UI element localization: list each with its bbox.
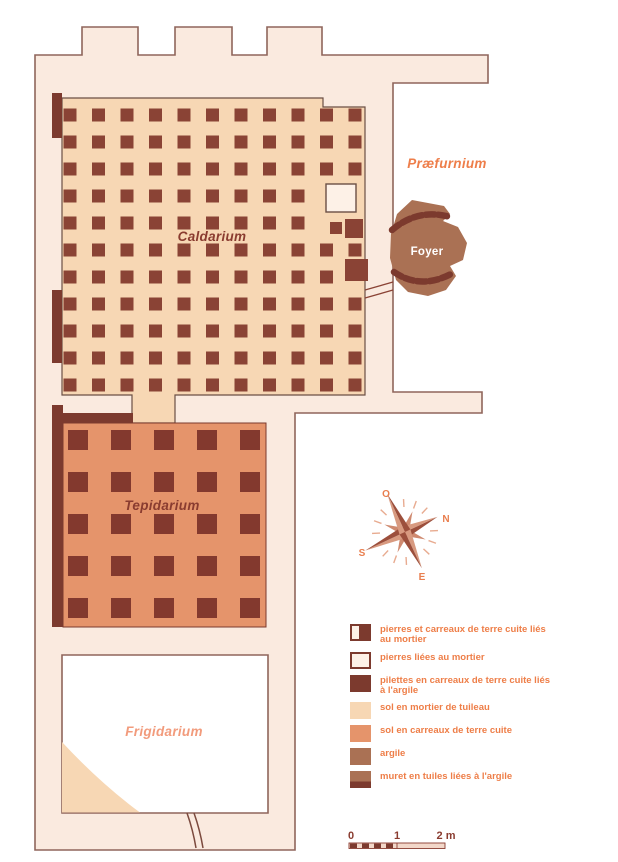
scale-label-0: 0: [348, 830, 354, 842]
praefurnium-label: Præfurnium: [407, 156, 487, 171]
caldarium-pilette-square: [263, 325, 276, 338]
caldarium-pilette-square: [92, 379, 105, 392]
muret-left-upper: [52, 93, 62, 138]
tepidarium-tile-square: [154, 556, 174, 576]
legend-label: sol en carreaux de terre cuite: [380, 726, 555, 736]
caldarium-pilette-square: [121, 136, 134, 149]
caldarium-pilette-square: [292, 109, 305, 122]
compass-tick: [381, 550, 389, 556]
tepidarium-tile-square: [240, 598, 260, 618]
caldarium-label: Caldarium: [178, 229, 247, 244]
legend-label: pierres et carreaux de terre cuite liés …: [380, 625, 555, 646]
legend-item: sol en mortier de tuileau: [350, 702, 600, 719]
legend-swatch-solid-dark: [350, 675, 371, 692]
caldarium-pilette-square: [178, 109, 191, 122]
caldarium-pilette-square: [235, 325, 248, 338]
caldarium-pilette-square: [292, 163, 305, 176]
frigidarium-mortar-patch: [62, 742, 140, 813]
tepidarium-tile-square: [111, 598, 131, 618]
compass-tick: [411, 501, 418, 508]
caldarium-pilette-square: [92, 352, 105, 365]
tepidarium-tile-square: [154, 598, 174, 618]
legend-item: argile: [350, 748, 600, 765]
compass-tick: [429, 538, 436, 545]
legend-swatch-split: [350, 624, 371, 641]
caldarium-pilette-square: [263, 190, 276, 203]
caldarium-pilette-square: [206, 163, 219, 176]
caldarium-pilette-square: [121, 109, 134, 122]
caldarium-pilette-square: [349, 244, 362, 257]
caldarium-pilette-square: [292, 352, 305, 365]
caldarium-pilette-square: [178, 244, 191, 257]
caldarium-pilette-square: [320, 352, 333, 365]
tepidarium-tile-square: [240, 556, 260, 576]
frigidarium-label: Frigidarium: [125, 724, 203, 739]
caldarium-pilette-square: [178, 190, 191, 203]
caldarium-pilette-square: [178, 325, 191, 338]
caldarium-pilette-square: [121, 298, 134, 311]
caldarium-pilette-square: [121, 379, 134, 392]
tepidarium-tile-square: [197, 598, 217, 618]
caldarium-pilette-square: [64, 136, 77, 149]
compass-tick: [381, 508, 387, 516]
caldarium-pilette-square: [64, 190, 77, 203]
compass-tick: [401, 499, 407, 507]
caldarium-pilette-square: [292, 298, 305, 311]
caldarium-pilette-square: [320, 379, 333, 392]
caldarium-pilette-square: [206, 325, 219, 338]
caldarium-pilette-square: [263, 163, 276, 176]
caldarium-pilette-square: [206, 379, 219, 392]
scale-label-2m: 2 m: [437, 830, 456, 842]
compass-tick: [430, 528, 438, 534]
caldarium-pilette-square: [64, 163, 77, 176]
scale-bar: [349, 843, 445, 849]
tepidarium-tile-square: [197, 472, 217, 492]
caldarium-pilette-square: [64, 244, 77, 257]
tepidarium-tile-square: [240, 514, 260, 534]
caldarium-pilette-square: [320, 136, 333, 149]
tepidarium-tile-square: [154, 430, 174, 450]
legend-swatch-tile-floor: [350, 725, 371, 742]
caldarium-pilette-square: [235, 298, 248, 311]
tepidarium-tile-square: [68, 430, 88, 450]
caldarium-pilette-square: [149, 163, 162, 176]
caldarium-pilette-square: [149, 217, 162, 230]
compass-letter-south: S: [359, 548, 366, 559]
caldarium-pilette-square: [92, 109, 105, 122]
caldarium-pilette-square: [235, 352, 248, 365]
caldarium-pilette-square: [320, 298, 333, 311]
tepidarium-tile-square: [197, 430, 217, 450]
tepidarium-label: Tepidarium: [124, 498, 199, 513]
tepidarium-tile-square: [154, 514, 174, 534]
caldarium-pilette-square: [121, 271, 134, 284]
caldarium-pilette-square: [263, 244, 276, 257]
caldarium-pilette-square: [349, 136, 362, 149]
caldarium-pilette-square: [178, 136, 191, 149]
caldarium-pilette-square: [206, 190, 219, 203]
caldarium-pilette-square: [320, 271, 333, 284]
caldarium-pilette-square: [292, 379, 305, 392]
caldarium-pilette-square: [121, 244, 134, 257]
caldarium-pilette-square: [64, 379, 77, 392]
caldarium-pilette-square: [121, 325, 134, 338]
tepidarium-tile-square: [111, 430, 131, 450]
caldarium-pilette-square: [149, 352, 162, 365]
caldarium-pilette-square: [235, 244, 248, 257]
caldarium-pilette-square: [206, 109, 219, 122]
scale-label-1: 1: [394, 830, 400, 842]
white-stone-block: [326, 184, 356, 212]
tepidarium-tile-square: [240, 472, 260, 492]
caldarium-pilette-square: [149, 379, 162, 392]
caldarium-pilette-square: [263, 271, 276, 284]
caldarium-pilette-square: [263, 379, 276, 392]
caldarium-pilette-square: [235, 136, 248, 149]
caldarium-pilette-square: [206, 217, 219, 230]
legend-swatch-outline: [350, 652, 371, 669]
caldarium-pilette-square: [92, 190, 105, 203]
legend-item: muret en tuiles liées à l'argile: [350, 771, 600, 788]
caldarium-pilette-square: [178, 271, 191, 284]
caldarium-pilette-square: [92, 298, 105, 311]
caldarium-pilette-square: [121, 352, 134, 365]
caldarium-pilette-square: [149, 244, 162, 257]
caldarium-pilette-square: [149, 325, 162, 338]
caldarium-pilette-square: [349, 298, 362, 311]
compass-tick: [403, 557, 409, 565]
compass-letter-east: E: [419, 572, 426, 583]
caldarium-pilette-square: [349, 352, 362, 365]
caldarium-pilette-square: [64, 217, 77, 230]
tepidarium-tile-square: [68, 514, 88, 534]
compass-tick: [391, 556, 398, 563]
caldarium-pilette-square: [121, 163, 134, 176]
caldarium-pilette-square: [92, 325, 105, 338]
pilette-block-c: [345, 259, 368, 281]
caldarium-pilette-square: [349, 379, 362, 392]
caldarium-pilette-square: [178, 298, 191, 311]
caldarium-pilette-square: [235, 190, 248, 203]
caldarium-pilette-square: [178, 163, 191, 176]
compass-tick: [372, 530, 380, 536]
caldarium-pilette-square: [92, 136, 105, 149]
caldarium-pilette-square: [349, 325, 362, 338]
caldarium-pilette-square: [235, 271, 248, 284]
tepidarium-tile-square: [240, 430, 260, 450]
caldarium-pilette-square: [206, 298, 219, 311]
caldarium-pilette-square: [64, 109, 77, 122]
caldarium-pilette-square: [206, 271, 219, 284]
caldarium-pilette-square: [64, 352, 77, 365]
legend-swatch-clay: [350, 748, 371, 765]
caldarium-pilette-square: [121, 190, 134, 203]
legend-item: sol en carreaux de terre cuite: [350, 725, 600, 742]
legend-item: pierres et carreaux de terre cuite liés …: [350, 624, 600, 646]
compass-rose-icon: [347, 479, 454, 587]
legend-swatch-clay-muret: [350, 771, 371, 788]
tepidarium-tile-square: [68, 556, 88, 576]
caldarium-pilette-square: [149, 271, 162, 284]
caldarium-pilette-square: [292, 271, 305, 284]
tepidarium-tile-square: [154, 472, 174, 492]
legend: pierres et carreaux de terre cuite liés …: [350, 624, 600, 794]
caldarium-pilette-square: [178, 379, 191, 392]
legend-label: pierres liées au mortier: [380, 653, 555, 663]
tepidarium-tile-square: [111, 556, 131, 576]
legend-label: argile: [380, 749, 555, 759]
legend-label: pilettes en carreaux de terre cuite liés…: [380, 676, 555, 697]
caldarium-pilette-square: [263, 136, 276, 149]
caldarium-pilette-square: [64, 298, 77, 311]
caldarium-pilette-square: [92, 244, 105, 257]
compass-letter-north: N: [442, 514, 449, 525]
caldarium-pilette-square: [263, 109, 276, 122]
caldarium-pilette-square: [320, 109, 333, 122]
caldarium-pilette-square: [92, 271, 105, 284]
caldarium-pilette-square: [235, 217, 248, 230]
compass-tick: [374, 518, 381, 525]
caldarium-pilette-square: [92, 163, 105, 176]
tepidarium-tile-square: [111, 472, 131, 492]
compass-tick: [421, 508, 429, 514]
foyer-label: Foyer: [411, 246, 444, 258]
caldarium-pilette-square: [206, 244, 219, 257]
legend-label: sol en mortier de tuileau: [380, 703, 555, 713]
caldarium-pilette-square: [149, 136, 162, 149]
caldarium-pilette-square: [121, 217, 134, 230]
caldarium-pilette-square: [206, 352, 219, 365]
caldarium-pilette-square: [64, 325, 77, 338]
caldarium-pilette-square: [149, 298, 162, 311]
caldarium-pilette-square: [235, 163, 248, 176]
pilette-block-b: [345, 219, 363, 238]
caldarium-pilette-square: [320, 244, 333, 257]
caldarium-pilette-square: [292, 325, 305, 338]
caldarium-pilette-square: [149, 190, 162, 203]
legend-label: muret en tuiles liées à l'argile: [380, 772, 555, 782]
caldarium-pilette-square: [178, 217, 191, 230]
tepidarium-tile-square: [197, 556, 217, 576]
legend-swatch-mortar-floor: [350, 702, 371, 719]
caldarium-pilette-square: [349, 163, 362, 176]
pilette-block-a: [330, 222, 342, 234]
caldarium-pilette-square: [235, 109, 248, 122]
tepidarium-tile-square: [68, 472, 88, 492]
caldarium-pilette-square: [206, 136, 219, 149]
caldarium-pilette-square: [263, 217, 276, 230]
caldarium-pilette-square: [149, 109, 162, 122]
caldarium-pilette-square: [64, 271, 77, 284]
muret-left-lower: [52, 290, 62, 363]
tepidarium-tile-square: [68, 598, 88, 618]
caldarium-pilette-square: [263, 352, 276, 365]
legend-item: pilettes en carreaux de terre cuite liés…: [350, 675, 600, 697]
tepidarium-tile-square: [197, 514, 217, 534]
caldarium-pilette-square: [92, 217, 105, 230]
caldarium-pilette-square: [292, 190, 305, 203]
caldarium-pilette-square: [178, 352, 191, 365]
legend-item: pierres liées au mortier: [350, 652, 600, 669]
caldarium-pilette-square: [349, 109, 362, 122]
caldarium-pilette-square: [292, 244, 305, 257]
compass-letter-west: O: [382, 489, 390, 500]
caldarium-pilette-square: [292, 217, 305, 230]
compass-tick: [423, 548, 429, 556]
bath-plan-figure: O N S E 0 1 2 m Caldarium Tepidarium Fri…: [0, 0, 618, 862]
caldarium-pilette-square: [235, 379, 248, 392]
caldarium-pilette-square: [320, 325, 333, 338]
caldarium-pilette-square: [292, 136, 305, 149]
caldarium-pilette-square: [320, 163, 333, 176]
caldarium-pilette-square: [263, 298, 276, 311]
tepidarium-tile-square: [111, 514, 131, 534]
